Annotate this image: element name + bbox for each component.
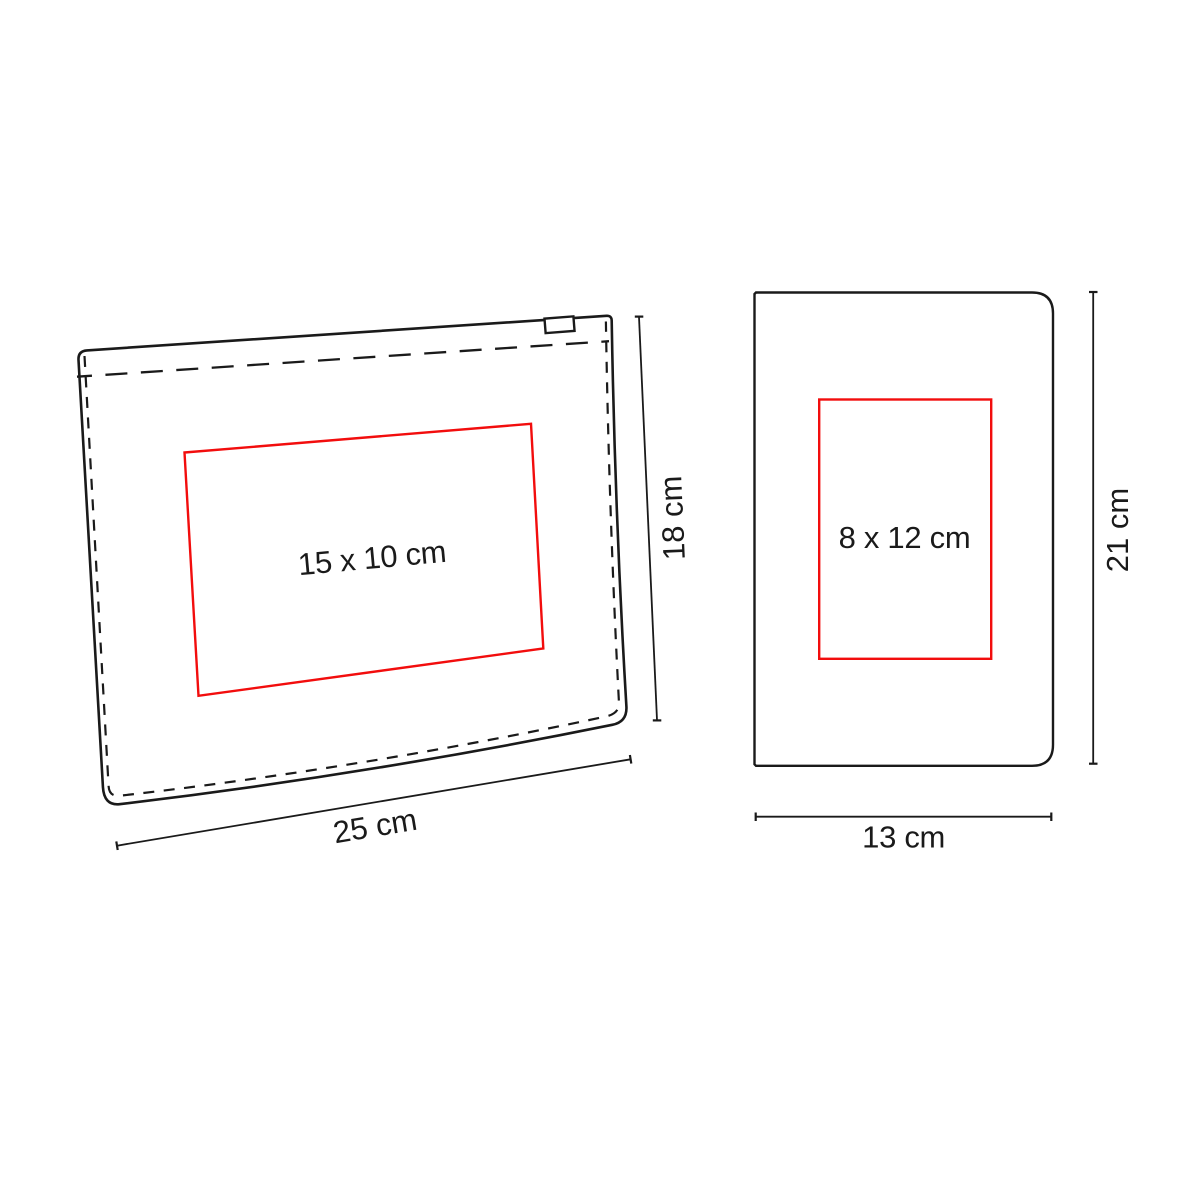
svg-text:21 cm: 21 cm: [1100, 488, 1135, 572]
svg-text:8 x 12 cm: 8 x 12 cm: [839, 520, 971, 555]
svg-text:13 cm: 13 cm: [862, 820, 945, 855]
svg-text:18 cm: 18 cm: [653, 475, 692, 561]
